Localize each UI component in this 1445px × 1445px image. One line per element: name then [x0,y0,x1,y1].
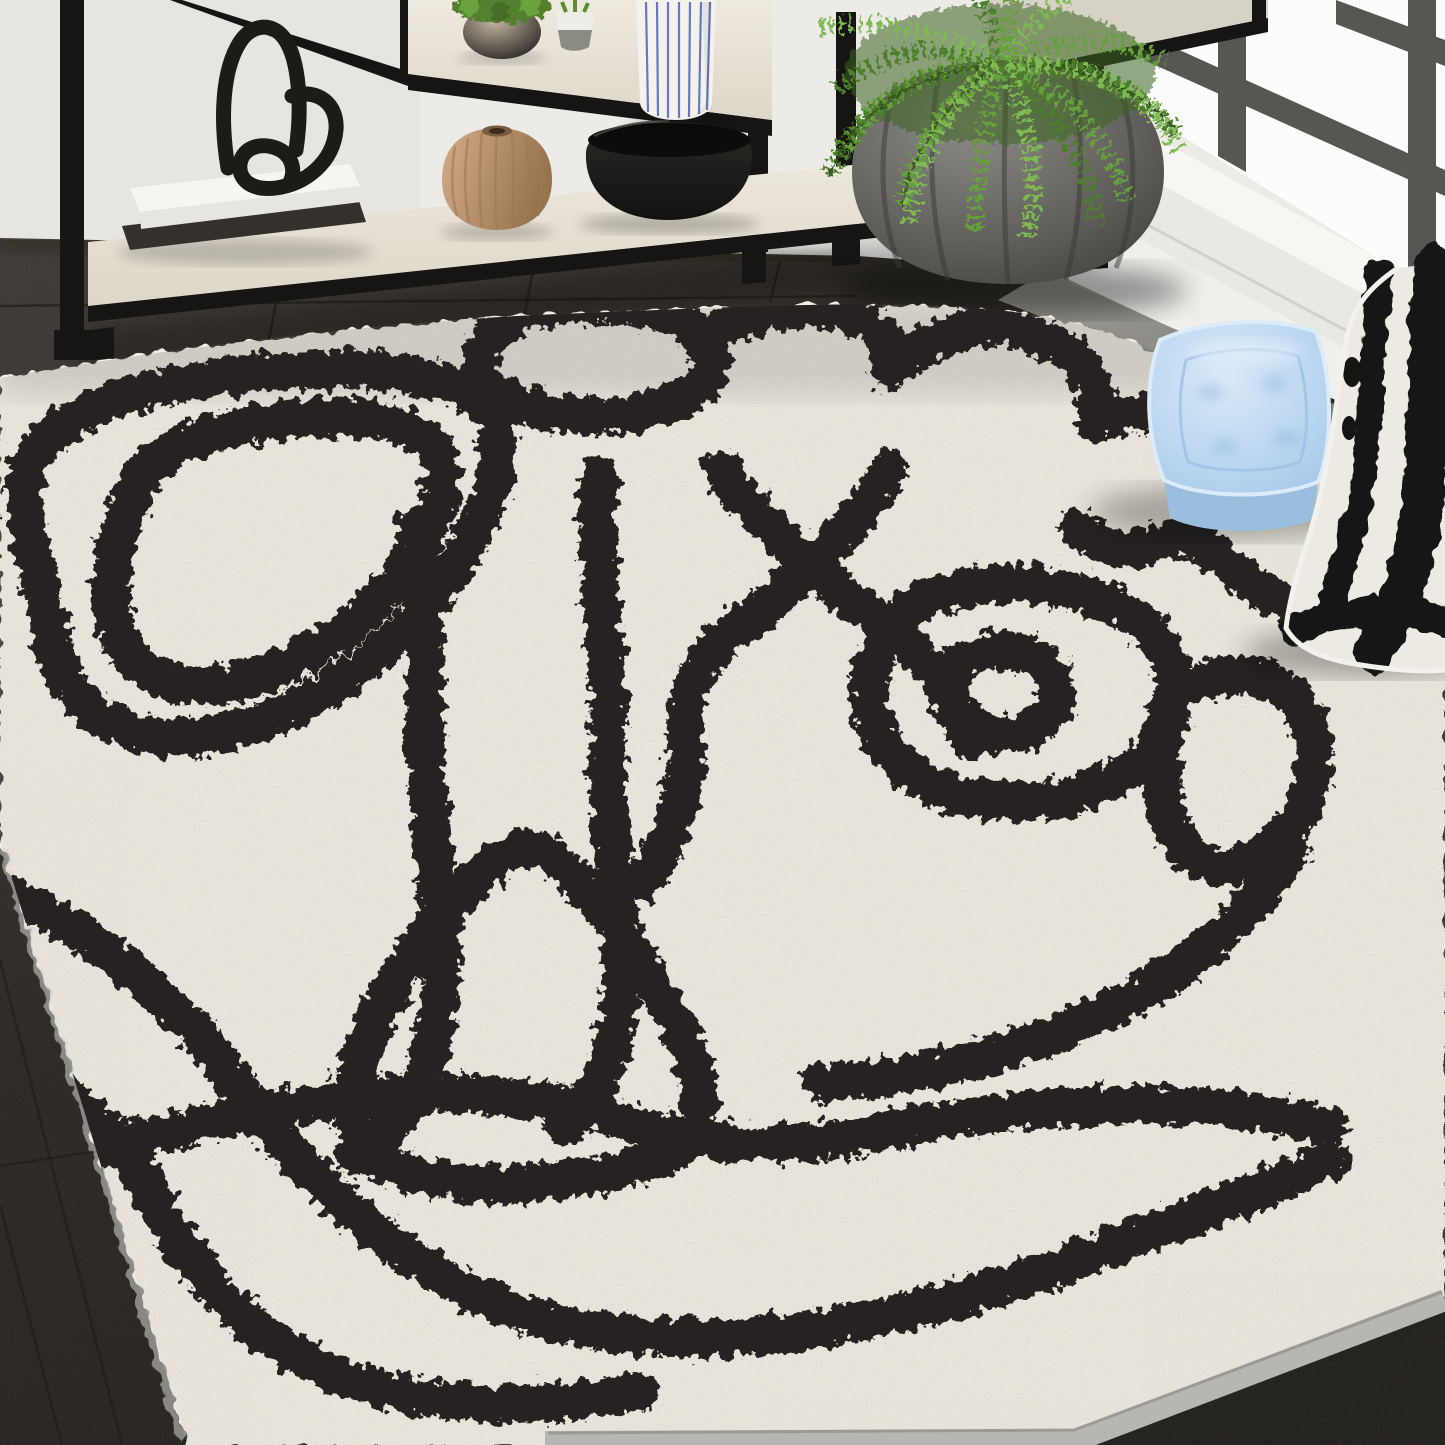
frame-foot [832,236,860,266]
frame-foot [90,327,114,360]
cushion-tuft [1261,377,1287,391]
planter-top [556,12,594,30]
cushion-highlight [1191,339,1301,365]
foliage-clump [491,3,509,21]
pillow-stripe-dot [1342,416,1356,440]
scene-canvas [0,0,1445,1445]
frame-post [60,0,84,332]
frame-foot [54,330,90,360]
cushion-tuft [1211,439,1237,453]
living-room-photo [0,0,1445,1445]
frame-foot [742,249,766,284]
cushion-tuft [1273,431,1299,445]
vase-opening-hole [489,128,505,134]
ribbed-vase [442,126,552,231]
planter-bottom [558,30,592,51]
striped-vase [636,0,716,120]
cushion-tuft [1197,385,1223,399]
frame-bar [1252,0,1266,26]
pillow-stripe-dot [1343,357,1361,387]
